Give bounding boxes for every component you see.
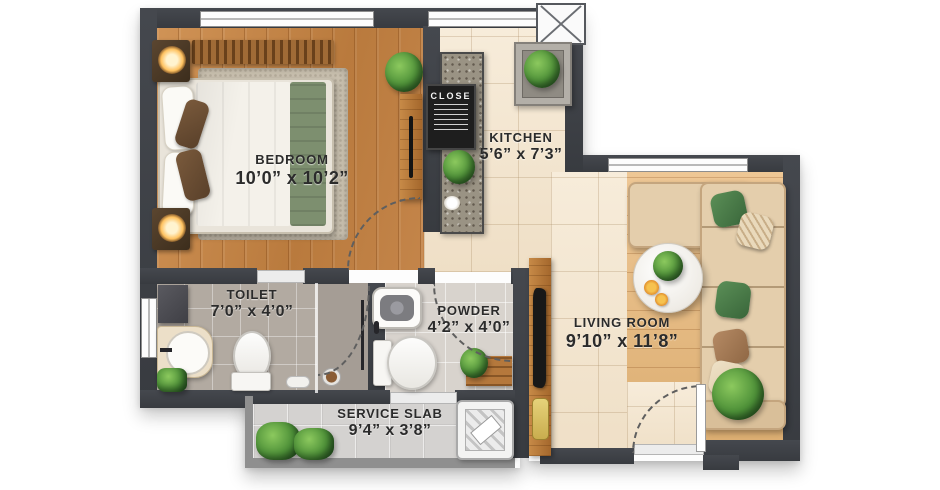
kitchen-planter-plant [524,50,560,88]
toilet-shelf [158,285,188,323]
toilet-window [141,298,157,358]
toilet-wc-tank [231,372,271,391]
wall-service-top-a [253,390,390,404]
floor-plan: CLOSE BEDROOM [0,0,940,490]
living-room-name: LIVING ROOM [566,315,678,330]
nightstand-lamp-top [158,46,186,74]
foyer-bottle [532,398,549,440]
bed-headboard [192,40,334,64]
sofa-pillow-green-2 [714,280,752,320]
powder-sink [372,287,422,329]
wall-step [703,455,739,470]
powder-label: POWDER 4’2” x 4’0” [428,303,511,337]
service-window-threshold [390,392,457,404]
wall-powder-stub-left [418,268,435,284]
foyer-coat-hooks [533,288,546,388]
toilet-door-threshold [257,270,305,283]
toilet-tray [286,376,310,388]
service-parapet-left [245,396,253,464]
snack-plate-2 [655,293,668,306]
kitchen-window [428,11,540,27]
toilet-label: TOILET 7’0” x 4’0” [211,287,294,321]
toilet-plant [157,368,187,392]
nightstand-lamp-bottom [158,214,186,242]
kitchen-board-title: CLOSE [428,91,474,101]
powder-dims: 4’2” x 4’0” [428,319,511,337]
washing-machine [456,400,514,460]
service-slab-label: SERVICE SLAB 9’4” x 3’8” [337,406,442,440]
wall-foyer-back [513,268,529,458]
living-room-label: LIVING ROOM 9’10” x 11’8” [566,315,678,352]
powder-sink-basin [380,295,414,321]
kitchen-counter-plant [443,150,475,184]
sliding-door-handle [409,116,413,178]
kitchen-bowl [444,196,460,210]
toilet-name: TOILET [211,287,294,302]
powder-wc-bowl [387,336,437,390]
kitchen-board-text-lines [434,104,467,130]
entrance-door-leaf [696,384,706,452]
wall-bedroom-bottom-a [140,268,257,284]
living-room-dims: 9’10” x 11’8” [566,331,678,352]
service-slab-dims: 9’4” x 3’8” [337,422,442,440]
powder-towel-ring [374,321,379,334]
toilet-faucet [160,348,172,352]
kitchen-label: KITCHEN 5’6” x 7’3” [480,130,563,164]
wall-toilet-bottom [140,390,253,408]
duct-shaft [536,3,586,45]
toilet-dims: 7’0” x 4’0” [211,303,294,321]
kitchen-menu-board: CLOSE [426,84,476,150]
coffee-table-plant [653,251,683,281]
wall-bedroom-bottom-b [303,268,349,284]
bedroom-label: BEDROOM 10’0” x 10’2” [235,152,348,189]
bedroom-sliding-door [400,94,422,200]
bedroom-plant [385,52,423,92]
service-plant-2 [294,428,334,460]
kitchen-dims: 5’6” x 7’3” [480,146,563,164]
service-slab-name: SERVICE SLAB [337,406,442,421]
bedroom-window [200,11,374,27]
kitchen-name: KITCHEN [480,130,563,145]
bedroom-name: BEDROOM [235,152,348,167]
powder-name: POWDER [428,303,511,318]
living-room-plant [712,368,764,420]
wall-living-bottom-left [540,448,634,464]
snack-plate-1 [644,280,659,295]
bedroom-dims: 10’0” x 10’2” [235,168,348,189]
living-room-window [608,158,748,172]
